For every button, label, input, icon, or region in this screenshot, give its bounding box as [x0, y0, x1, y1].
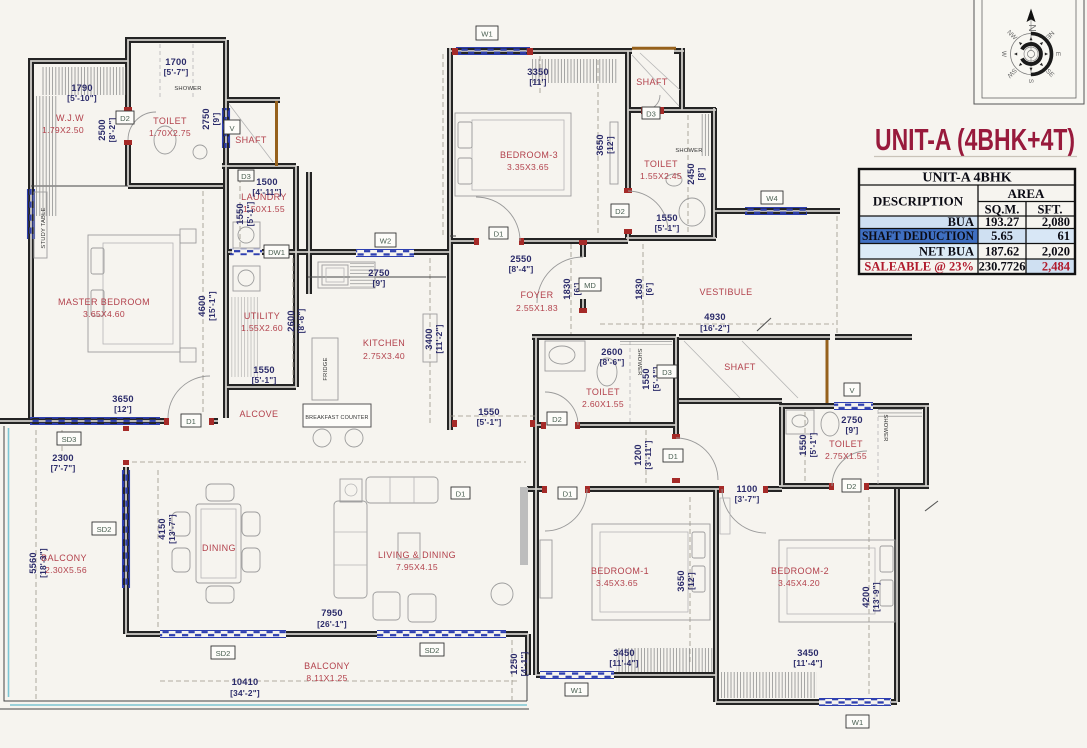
svg-text:5560: 5560 — [28, 552, 38, 573]
svg-text:3.35X3.65: 3.35X3.65 — [507, 162, 549, 172]
svg-text:VESTIBULE: VESTIBULE — [699, 287, 752, 297]
svg-text:SHAFT: SHAFT — [636, 77, 668, 87]
svg-text:[13'-9"]: [13'-9"] — [871, 582, 881, 612]
svg-text:3650: 3650 — [676, 570, 686, 591]
svg-text:TOILET: TOILET — [829, 439, 863, 449]
svg-text:SHOWER: SHOWER — [174, 86, 201, 92]
svg-text:7.95X4.15: 7.95X4.15 — [396, 562, 438, 572]
svg-text:1250: 1250 — [509, 653, 519, 674]
svg-text:[4'-1"]: [4'-1"] — [519, 652, 529, 677]
svg-text:D3: D3 — [241, 172, 251, 181]
svg-text:8.11X1.25: 8.11X1.25 — [306, 673, 347, 683]
svg-text:BREAKFAST COUNTER: BREAKFAST COUNTER — [305, 415, 368, 421]
svg-text:230.7726: 230.7726 — [979, 260, 1026, 274]
svg-text:1550: 1550 — [798, 434, 808, 455]
svg-text:STUDY TABLE: STUDY TABLE — [41, 207, 47, 248]
svg-text:4930: 4930 — [704, 312, 725, 322]
svg-text:2.55X1.83: 2.55X1.83 — [516, 303, 558, 313]
svg-text:E: E — [1054, 52, 1061, 57]
svg-text:ALCOVE: ALCOVE — [240, 409, 279, 419]
svg-text:3350: 3350 — [527, 67, 548, 77]
svg-text:BUA: BUA — [948, 215, 974, 229]
svg-text:D1: D1 — [563, 490, 573, 499]
svg-text:3450: 3450 — [613, 648, 634, 658]
svg-text:2,020: 2,020 — [1042, 245, 1070, 259]
svg-text:[9']: [9'] — [846, 425, 859, 435]
svg-text:[5'-1"]: [5'-1"] — [245, 202, 255, 227]
svg-text:1550: 1550 — [656, 213, 677, 223]
svg-text:2450: 2450 — [686, 163, 696, 184]
svg-text:SHAFT DEDUCTION: SHAFT DEDUCTION — [862, 229, 974, 243]
svg-text:SHOWER: SHOWER — [675, 148, 702, 154]
svg-text:SHAFT: SHAFT — [724, 362, 756, 372]
svg-text:1.79X2.50: 1.79X2.50 — [42, 125, 84, 135]
svg-text:W.J.W: W.J.W — [56, 113, 84, 123]
svg-text:2550: 2550 — [510, 254, 531, 264]
svg-text:DW1: DW1 — [268, 248, 285, 257]
svg-text:[8'-4"]: [8'-4"] — [509, 264, 534, 274]
svg-text:1550: 1550 — [235, 203, 245, 224]
svg-text:BALCONY: BALCONY — [304, 661, 350, 671]
svg-text:61: 61 — [1058, 229, 1071, 243]
svg-text:2750: 2750 — [201, 108, 211, 129]
svg-text:[5'-7"]: [5'-7"] — [164, 67, 189, 77]
svg-text:[5'-10"]: [5'-10"] — [67, 93, 97, 103]
svg-text:FOYER: FOYER — [520, 290, 553, 300]
svg-text:2500: 2500 — [97, 119, 107, 140]
svg-text:D1: D1 — [456, 490, 466, 499]
svg-text:D2: D2 — [847, 482, 857, 491]
svg-text:1550: 1550 — [253, 365, 274, 375]
svg-text:2750: 2750 — [841, 415, 862, 425]
svg-text:[11'-4"]: [11'-4"] — [793, 658, 822, 668]
svg-text:1.70X2.75: 1.70X2.75 — [149, 128, 191, 138]
svg-text:[6']: [6'] — [644, 283, 654, 296]
svg-text:1830: 1830 — [562, 278, 572, 299]
svg-text:4200: 4200 — [861, 586, 871, 607]
svg-text:[34'-2"]: [34'-2"] — [230, 688, 260, 698]
svg-text:[5'-1"]: [5'-1"] — [252, 375, 277, 385]
svg-text:[13'-7"]: [13'-7"] — [167, 514, 177, 544]
svg-text:[26'-1"]: [26'-1"] — [317, 619, 347, 629]
svg-text:SD2: SD2 — [425, 646, 440, 655]
svg-text:TOILET: TOILET — [644, 159, 678, 169]
svg-text:D2: D2 — [615, 207, 625, 216]
svg-text:[9']: [9'] — [373, 278, 386, 288]
svg-text:DESCRIPTION: DESCRIPTION — [873, 194, 964, 209]
svg-text:3.45X4.20: 3.45X4.20 — [778, 578, 820, 588]
svg-text:1.55X2.45: 1.55X2.45 — [640, 171, 682, 181]
svg-text:2.60X1.55: 2.60X1.55 — [582, 399, 624, 409]
svg-text:2,484: 2,484 — [1042, 260, 1071, 274]
svg-text:1500: 1500 — [256, 177, 277, 187]
svg-text:[3'-11"]: [3'-11"] — [643, 440, 653, 469]
svg-text:1.55X2.60: 1.55X2.60 — [241, 323, 283, 333]
svg-text:3.65X4.60: 3.65X4.60 — [83, 309, 125, 319]
svg-text:D1: D1 — [668, 452, 678, 461]
svg-text:KITCHEN: KITCHEN — [363, 338, 405, 348]
svg-text:DINING: DINING — [202, 543, 236, 553]
svg-text:2.75X3.40: 2.75X3.40 — [363, 351, 405, 361]
svg-text:NET BUA: NET BUA — [919, 245, 974, 259]
svg-text:D3: D3 — [662, 368, 672, 377]
svg-text:SD2: SD2 — [216, 649, 231, 658]
svg-text:4150: 4150 — [157, 518, 167, 539]
svg-text:[5'-1"]: [5'-1"] — [808, 433, 818, 458]
svg-text:[15'-1"]: [15'-1"] — [207, 291, 217, 321]
svg-text:SALEABLE @ 23%: SALEABLE @ 23% — [864, 260, 974, 274]
svg-text:MD: MD — [584, 281, 596, 290]
svg-text:2600: 2600 — [601, 347, 622, 357]
svg-text:1830: 1830 — [634, 278, 644, 299]
svg-text:3.45X3.65: 3.45X3.65 — [596, 578, 638, 588]
svg-text:[12']: [12'] — [114, 404, 132, 414]
svg-text:7950: 7950 — [321, 608, 342, 618]
svg-text:UNIT-A 4BHK: UNIT-A 4BHK — [922, 171, 1011, 186]
svg-text:4600: 4600 — [197, 295, 207, 316]
svg-text:3650: 3650 — [112, 394, 133, 404]
svg-text:2.75X1.55: 2.75X1.55 — [825, 451, 867, 461]
svg-text:BEDROOM-3: BEDROOM-3 — [500, 150, 558, 160]
svg-text:[5'-1"]: [5'-1"] — [655, 223, 680, 233]
svg-text:10410: 10410 — [232, 677, 259, 687]
svg-text:2,080: 2,080 — [1042, 215, 1070, 229]
svg-text:[7'-7"]: [7'-7"] — [51, 463, 76, 473]
svg-text:[11']: [11'] — [529, 77, 546, 87]
svg-text:LIVING & DINING: LIVING & DINING — [378, 550, 456, 560]
svg-text:W2: W2 — [380, 237, 391, 246]
svg-text:[3'-7"]: [3'-7"] — [735, 494, 760, 504]
svg-text:W1: W1 — [571, 686, 582, 695]
svg-text:FRIDGE: FRIDGE — [323, 357, 329, 380]
svg-text:MASTER BEDROOM: MASTER BEDROOM — [58, 297, 150, 307]
svg-text:187.62: 187.62 — [985, 245, 1019, 259]
svg-text:[18'-3"]: [18'-3"] — [38, 548, 48, 578]
svg-text:1550: 1550 — [478, 407, 499, 417]
svg-text:2600: 2600 — [286, 310, 296, 331]
svg-text:SHAFT: SHAFT — [235, 135, 267, 145]
svg-text:AREA: AREA — [1008, 186, 1045, 201]
svg-text:N: N — [1026, 24, 1038, 32]
svg-text:TOILET: TOILET — [153, 116, 187, 126]
svg-text:D1: D1 — [494, 230, 504, 239]
svg-text:[4'-11"]: [4'-11"] — [252, 187, 281, 197]
svg-text:[8'-6"]: [8'-6"] — [296, 309, 306, 334]
svg-text:D2: D2 — [552, 415, 562, 424]
svg-text:BEDROOM-1: BEDROOM-1 — [591, 566, 649, 576]
svg-text:[16'-2"]: [16'-2"] — [700, 323, 730, 333]
svg-text:SD3: SD3 — [62, 435, 77, 444]
svg-text:1790: 1790 — [71, 83, 92, 93]
svg-text:3400: 3400 — [424, 328, 434, 349]
svg-text:D1: D1 — [186, 417, 196, 426]
svg-text:193.27: 193.27 — [985, 215, 1019, 229]
svg-text:3450: 3450 — [797, 648, 818, 658]
svg-text:2.30X5.56: 2.30X5.56 — [45, 565, 87, 575]
svg-text:SHOWER: SHOWER — [882, 414, 888, 441]
svg-text:TOILET: TOILET — [586, 387, 620, 397]
svg-text:[11'-2"]: [11'-2"] — [434, 324, 444, 353]
svg-text:SD2: SD2 — [97, 525, 112, 534]
svg-text:[8']: [8'] — [696, 168, 706, 181]
svg-text:[8'-6"]: [8'-6"] — [600, 357, 625, 367]
svg-text:UTILITY: UTILITY — [244, 311, 280, 321]
svg-text:S: S — [1027, 79, 1034, 84]
svg-text:3650: 3650 — [595, 134, 605, 155]
svg-text:W1: W1 — [852, 718, 863, 727]
svg-text:W1: W1 — [481, 30, 492, 39]
svg-text:5.65: 5.65 — [991, 229, 1013, 243]
svg-text:BEDROOM-2: BEDROOM-2 — [771, 566, 829, 576]
svg-text:2300: 2300 — [52, 453, 73, 463]
svg-text:UNIT-A (4BHK+4T): UNIT-A (4BHK+4T) — [875, 122, 1075, 157]
svg-text:W: W — [1000, 51, 1007, 58]
svg-text:2750: 2750 — [368, 268, 389, 278]
svg-text:1200: 1200 — [633, 444, 643, 465]
svg-text:W4: W4 — [766, 194, 777, 203]
svg-text:D2: D2 — [120, 114, 130, 123]
svg-text:1100: 1100 — [737, 484, 758, 494]
svg-text:[12']: [12'] — [686, 572, 696, 590]
svg-text:[8'-2"]: [8'-2"] — [107, 118, 117, 143]
svg-text:D3: D3 — [646, 110, 656, 119]
svg-text:[5'-1"]: [5'-1"] — [477, 417, 502, 427]
svg-text:1700: 1700 — [165, 57, 186, 67]
svg-text:[11'-4"]: [11'-4"] — [609, 658, 638, 668]
svg-text:[12']: [12'] — [605, 136, 615, 154]
svg-text:1550: 1550 — [641, 368, 651, 389]
svg-text:[9']: [9'] — [211, 113, 221, 126]
